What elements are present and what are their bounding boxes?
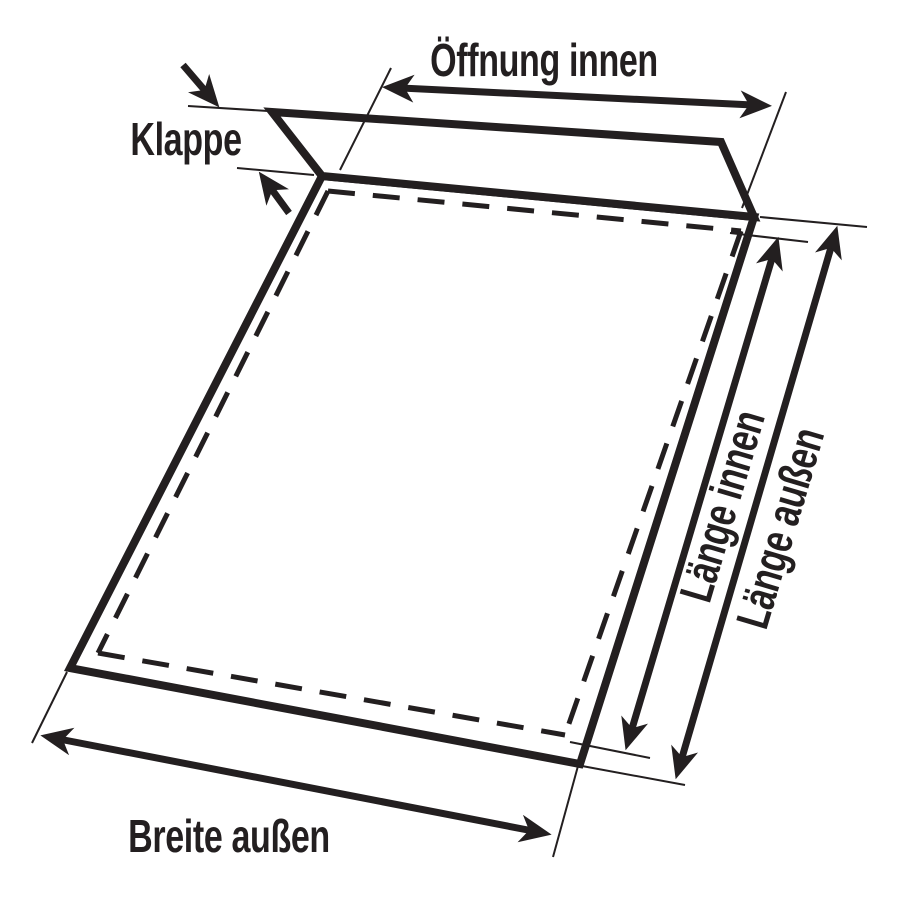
diagram-canvas: Öffnung innen Klappe Länge innen Länge a… xyxy=(0,0,900,900)
envelope-dimensions-diagram: Öffnung innen Klappe Länge innen Länge a… xyxy=(0,0,900,900)
klappe-label: Klappe xyxy=(130,113,241,165)
breite-aussen-label: Breite außen xyxy=(128,810,330,862)
oeffnung-innen-label: Öffnung innen xyxy=(430,34,658,86)
